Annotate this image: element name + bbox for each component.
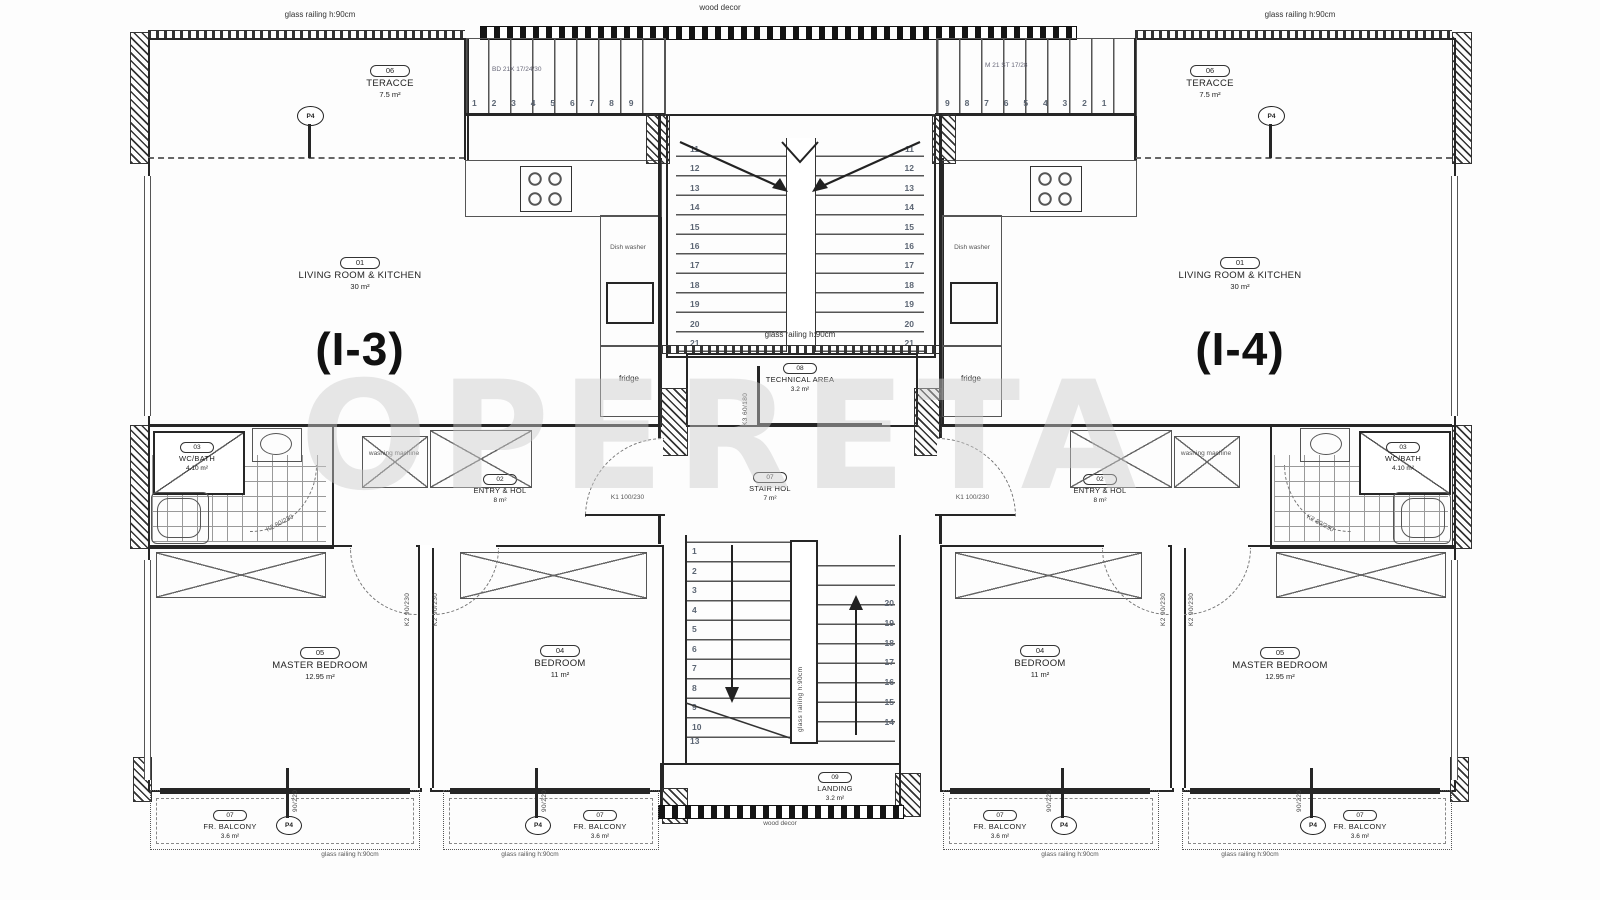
wood-decor-label-top: wood decor	[640, 3, 800, 12]
wall-pier	[932, 114, 956, 164]
stair-spec-left: BD 21X 17/24/30	[492, 66, 542, 73]
k3-door-label: K3 60/180	[742, 368, 749, 426]
room-name: LIVING ROOM & KITCHEN	[1140, 271, 1340, 282]
room-name: FR. BALCONY	[945, 823, 1055, 832]
room-name: MASTER BEDROOM	[235, 661, 405, 672]
wc-left-label: 03 WC/BATH 4.10 m²	[155, 436, 239, 472]
exterior-stairs-left-numbers: 1 2 3 4 5 6 7 8 9	[472, 98, 633, 108]
room-name: STAIR HOL	[710, 485, 830, 494]
entry-door-leaf-left	[585, 514, 665, 516]
balcony-door-label: 90/220	[1296, 776, 1303, 812]
bath-sink-basin	[1310, 433, 1342, 455]
washing-machine-right	[1174, 436, 1240, 488]
glass-railing-label-top-left: glass railing h:90cm	[220, 10, 420, 19]
room-area: 11 m²	[985, 671, 1095, 680]
wood-decor-label-bottom: wood decor	[700, 820, 860, 827]
kitchen-sink-left	[606, 282, 654, 324]
room-number-badge: 01	[340, 257, 380, 269]
wall	[935, 113, 1135, 116]
technical-door-line	[757, 423, 882, 426]
room-name: ENTRY & HOL	[1040, 487, 1160, 496]
living-left-label: 01 LIVING ROOM & KITCHEN 30 m²	[260, 252, 460, 292]
technical-area-label: 08 TECHNICAL AREA 3.2 m²	[700, 357, 900, 393]
entry-closet-left	[430, 430, 532, 488]
p4-marker: P4	[525, 816, 551, 835]
window	[144, 560, 151, 780]
room-number-badge: 06	[1190, 65, 1230, 77]
balcony-4-wall	[1190, 788, 1440, 794]
balcony-3-label: 07 FR. BALCONY 3.6 m²	[945, 804, 1055, 840]
room-name: LANDING	[780, 785, 890, 794]
washing-machine-label-left: washing machine	[362, 450, 426, 457]
k1-door-label-right: K1 100/230	[935, 494, 1010, 501]
bathtub-basin	[157, 498, 201, 538]
room-area: 3.2 m²	[700, 386, 900, 393]
room-area: 3.6 m²	[170, 833, 290, 840]
unit-label-left: (I-3)	[260, 322, 460, 376]
stove-right	[1030, 166, 1082, 212]
stair-direction-arrows-upper	[670, 118, 930, 213]
terrace-left-label: 06 TERACCE 7.5 m²	[320, 60, 460, 100]
room-area: 3.6 m²	[945, 833, 1055, 840]
balcony-1-label: 07 FR. BALCONY 3.6 m²	[170, 804, 290, 840]
stove-left	[520, 166, 572, 212]
p4-stem	[1310, 768, 1313, 818]
wall-pier	[660, 388, 688, 456]
master-right-label: 05 MASTER BEDROOM 12.95 m²	[1195, 642, 1365, 682]
wall	[465, 113, 665, 116]
room-area: 7 m²	[710, 495, 830, 502]
stair-direction-arrows-lower	[680, 535, 900, 750]
wall-pier	[130, 425, 150, 549]
wood-decor-strip-bottom	[658, 805, 904, 819]
room-area: 12.95 m²	[1195, 673, 1365, 682]
master-closet-left	[156, 552, 326, 598]
balcony-door-label: 90/220	[541, 776, 548, 812]
room-number-badge: 03	[1386, 442, 1420, 453]
master-closet-right	[1276, 552, 1446, 598]
glass-railing-label-top-right: glass railing h:90cm	[1200, 10, 1400, 19]
room-number-badge: 07	[753, 472, 787, 483]
room-number-badge: 08	[783, 363, 817, 374]
room-area: 8 m²	[1040, 497, 1160, 504]
room-number-badge: 01	[1220, 257, 1260, 269]
room-area: 11 m²	[505, 671, 615, 680]
room-number-badge: 07	[583, 810, 617, 821]
room-number-badge: 07	[983, 810, 1017, 821]
stair-spec-right: M 21 ST 17/28	[985, 62, 1028, 69]
room-number-badge: 06	[370, 65, 410, 77]
room-area: 12.95 m²	[235, 673, 405, 682]
wall-pier	[130, 32, 150, 164]
room-name: LIVING ROOM & KITCHEN	[260, 271, 460, 282]
stair-hol-label: 07 STAIR HOL 7 m²	[710, 466, 830, 502]
wall	[1134, 38, 1136, 160]
room-area: 3.2 m²	[780, 795, 890, 802]
bedroom-left-label: 04 BEDROOM 11 m²	[505, 640, 615, 680]
room-number-badge: 09	[818, 772, 852, 783]
landing-label: 09 LANDING 3.2 m²	[780, 766, 890, 802]
k1-door-label-left: K1 100/230	[590, 494, 665, 501]
fridge-label-right: fridge	[942, 374, 1000, 383]
room-number-badge: 04	[1020, 645, 1060, 657]
dishwasher-label-right: Dish washer	[944, 244, 1000, 251]
room-name: FR. BALCONY	[545, 823, 655, 832]
room-name: ENTRY & HOL	[440, 487, 560, 496]
room-area: 3.6 m²	[545, 833, 655, 840]
floor-plan: OPERETA glass railing h:90cm glass raili…	[0, 0, 1600, 900]
entry-door-leaf-right	[935, 514, 1015, 516]
entry-door-arc-left	[585, 438, 664, 517]
wall	[464, 38, 466, 160]
terrace-right-label: 06 TERACCE 7.5 m²	[1140, 60, 1280, 100]
dishwasher-label-left: Dish washer	[600, 244, 656, 251]
p4-stem	[535, 768, 538, 818]
p4-marker: P4	[297, 106, 324, 126]
k2-bed-door-label: K2 90/230	[404, 556, 411, 626]
master-left-label: 05 MASTER BEDROOM 12.95 m²	[235, 642, 405, 682]
room-number-badge: 03	[180, 442, 214, 453]
fridge-label-left: fridge	[600, 374, 658, 383]
bath-sink-basin	[260, 433, 292, 455]
p4-stem	[308, 124, 311, 158]
balcony-door-label: 90/220	[1046, 776, 1053, 812]
p4-stem	[286, 768, 289, 818]
room-number-badge: 05	[300, 647, 340, 659]
window	[144, 176, 151, 416]
glass-railing-label-bottom: glass railing h:90cm	[1150, 851, 1350, 858]
room-area: 8 m²	[440, 497, 560, 504]
p4-marker: P4	[276, 816, 302, 835]
k2-bed-door-label: K2 90/230	[1160, 556, 1167, 626]
living-right-label: 01 LIVING ROOM & KITCHEN 30 m²	[1140, 252, 1340, 292]
glass-railing-label-bottom: glass railing h:90cm	[250, 851, 450, 858]
window	[1451, 176, 1458, 416]
room-area: 30 m²	[260, 283, 460, 292]
kitchen-counter-left-side	[600, 215, 660, 347]
entry-closet-right	[1070, 430, 1172, 488]
room-area: 4.10 m²	[155, 465, 239, 472]
p4-stem	[1269, 124, 1272, 158]
room-name: BEDROOM	[505, 659, 615, 670]
room-number-badge: 07	[213, 810, 247, 821]
glass-railing-label-mid: glass railing h:90cm	[690, 330, 910, 339]
exterior-stairs-right-numbers: 9 8 7 6 5 4 3 2 1	[945, 98, 1106, 108]
entry-door-arc-right	[937, 438, 1016, 517]
washing-machine-label-right: washing machine	[1174, 450, 1238, 457]
room-number-badge: 05	[1260, 647, 1300, 659]
bathtub-basin	[1401, 498, 1445, 538]
room-number-badge: 07	[1343, 810, 1377, 821]
balcony-2-wall	[450, 788, 650, 794]
room-name: TECHNICAL AREA	[700, 376, 900, 385]
kitchen-sink-right	[950, 282, 998, 324]
washing-machine-left	[362, 436, 428, 488]
room-area: 7.5 m²	[320, 91, 460, 100]
p4-marker: P4	[1051, 816, 1077, 835]
room-name: WC/BATH	[1361, 455, 1445, 464]
room-name: BEDROOM	[985, 659, 1095, 670]
room-area: 4.10 m²	[1361, 465, 1445, 472]
room-name: WC/BATH	[155, 455, 239, 464]
p4-stem	[1061, 768, 1064, 818]
technical-door-line	[757, 366, 760, 426]
room-name: MASTER BEDROOM	[1195, 661, 1365, 672]
wc-right-label: 03 WC/BATH 4.10 m²	[1361, 436, 1445, 472]
glass-railing-label-bottom: glass railing h:90cm	[430, 851, 630, 858]
room-area: 7.5 m²	[1140, 91, 1280, 100]
balcony-2-label: 07 FR. BALCONY 3.6 m²	[545, 804, 655, 840]
p4-marker: P4	[1258, 106, 1285, 126]
bedroom-right-label: 04 BEDROOM 11 m²	[985, 640, 1095, 680]
room-number-badge: 04	[540, 645, 580, 657]
kitchen-counter-right-side	[942, 215, 1002, 347]
room-name: TERACCE	[320, 79, 460, 90]
p4-marker: P4	[1300, 816, 1326, 835]
balcony-1-wall	[160, 788, 410, 794]
room-name: TERACCE	[1140, 79, 1280, 90]
balcony-door-label: 90/220	[292, 776, 299, 812]
room-name: FR. BALCONY	[170, 823, 290, 832]
k2-bed-door-label: K2 90/230	[432, 556, 439, 626]
k2-bed-door-label: K2 90/230	[1188, 556, 1195, 626]
window	[1451, 560, 1458, 780]
unit-label-right: (I-4)	[1140, 322, 1340, 376]
glass-railing-label-bottom: glass railing h:90cm	[970, 851, 1170, 858]
room-area: 30 m²	[1140, 283, 1340, 292]
